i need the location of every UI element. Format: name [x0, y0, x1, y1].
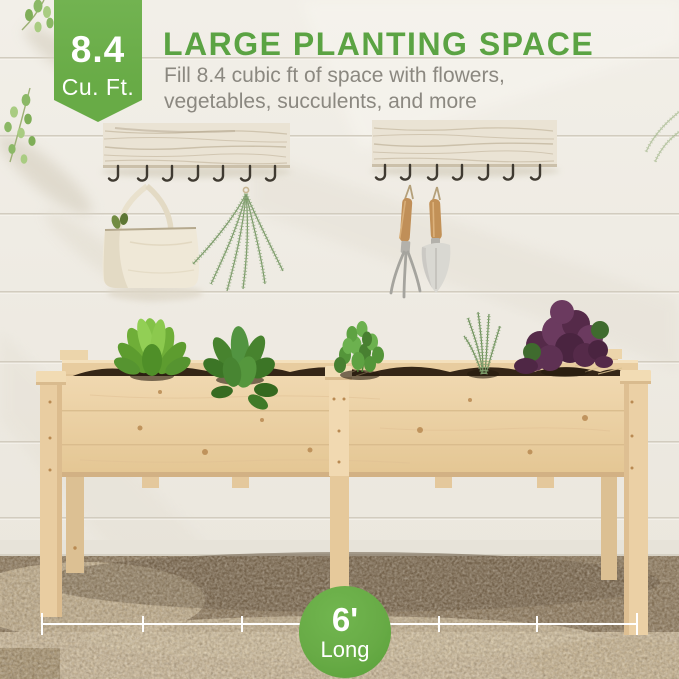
subheadline: Fill 8.4 cubic ft of space with flowers,…: [164, 63, 505, 115]
product-image: 8.4 Cu. Ft. LARGE PLANTING SPACE Fill 8.…: [0, 0, 679, 679]
capacity-unit: Cu. Ft.: [54, 74, 142, 101]
headline: LARGE PLANTING SPACE: [163, 26, 594, 63]
length-label: Long: [321, 639, 370, 661]
subheadline-line1: Fill 8.4 cubic ft of space with flowers,: [164, 63, 505, 89]
capacity-badge: 8.4 Cu. Ft.: [54, 0, 142, 122]
capacity-value: 8.4: [54, 29, 142, 71]
length-callout-badge: 6' Long: [299, 586, 391, 678]
hook-rail-right: [370, 120, 560, 180]
length-value: 6': [332, 603, 358, 636]
hook-rail-left: [101, 123, 291, 181]
subheadline-line2: vegetables, succulents, and more: [164, 89, 505, 115]
